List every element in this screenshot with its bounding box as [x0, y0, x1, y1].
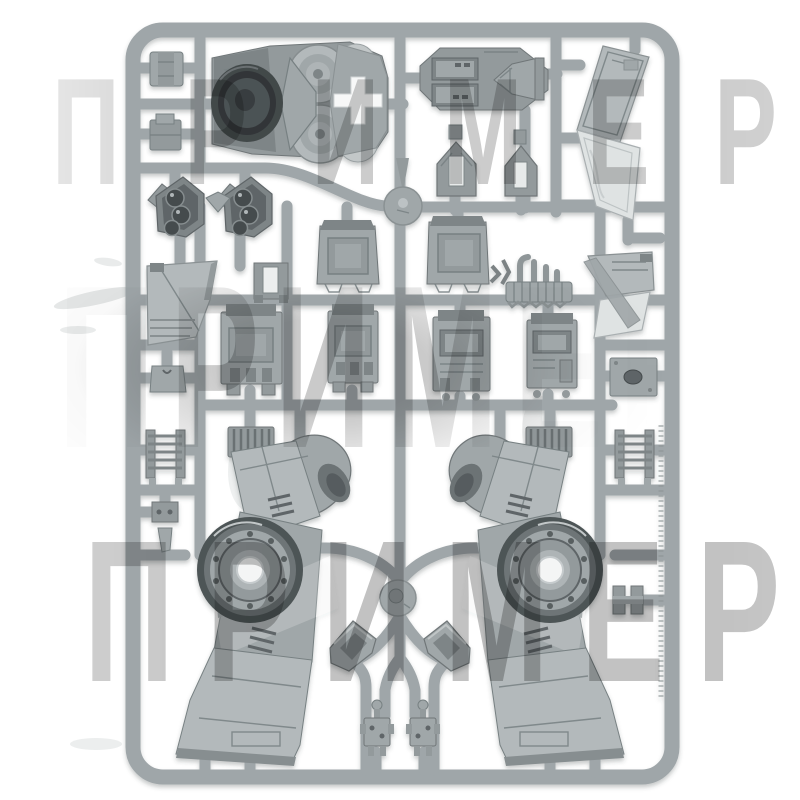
tail-wing-panel-part [577, 46, 649, 220]
vent-house-part-2 [505, 130, 537, 196]
recessed-box-part-right [427, 216, 489, 292]
sensor-pod-part-1 [148, 177, 204, 237]
armor-wedge-part-left [147, 261, 217, 345]
h-bracket-part [254, 263, 288, 303]
elbow-duct-part-left [330, 621, 376, 671]
porthole-plate-part [610, 358, 657, 396]
rail-clip-part [152, 502, 178, 552]
hatch-box-part-2 [328, 304, 378, 392]
hull-roof-hatch-part [420, 48, 548, 110]
sensor-pod-part-2 [216, 177, 272, 237]
hatch-box-part-3 [433, 310, 490, 401]
runner-hub-top [384, 187, 422, 225]
runner-hub-bottom [380, 580, 416, 616]
vent-house-part-1 [437, 125, 476, 196]
hatch-box-part-1 [221, 304, 282, 395]
elbow-duct-part-right [424, 621, 470, 671]
clip-part-top-1 [150, 52, 183, 86]
sprue-photo-svg [0, 0, 800, 800]
recessed-box-part-left [317, 220, 379, 292]
rail-bracket-part [613, 586, 643, 614]
clip-part-top-2 [150, 114, 181, 150]
notch-plate-part [150, 366, 186, 392]
product-photo: ПРИМЕР ПРИМЕР ПРИМЕР [0, 0, 800, 800]
ladder-part-left [146, 430, 185, 490]
hatch-box-part-4 [527, 313, 577, 398]
ladder-part-right [615, 430, 654, 490]
turbine-intake-part [211, 42, 388, 163]
sprue [133, 30, 672, 777]
